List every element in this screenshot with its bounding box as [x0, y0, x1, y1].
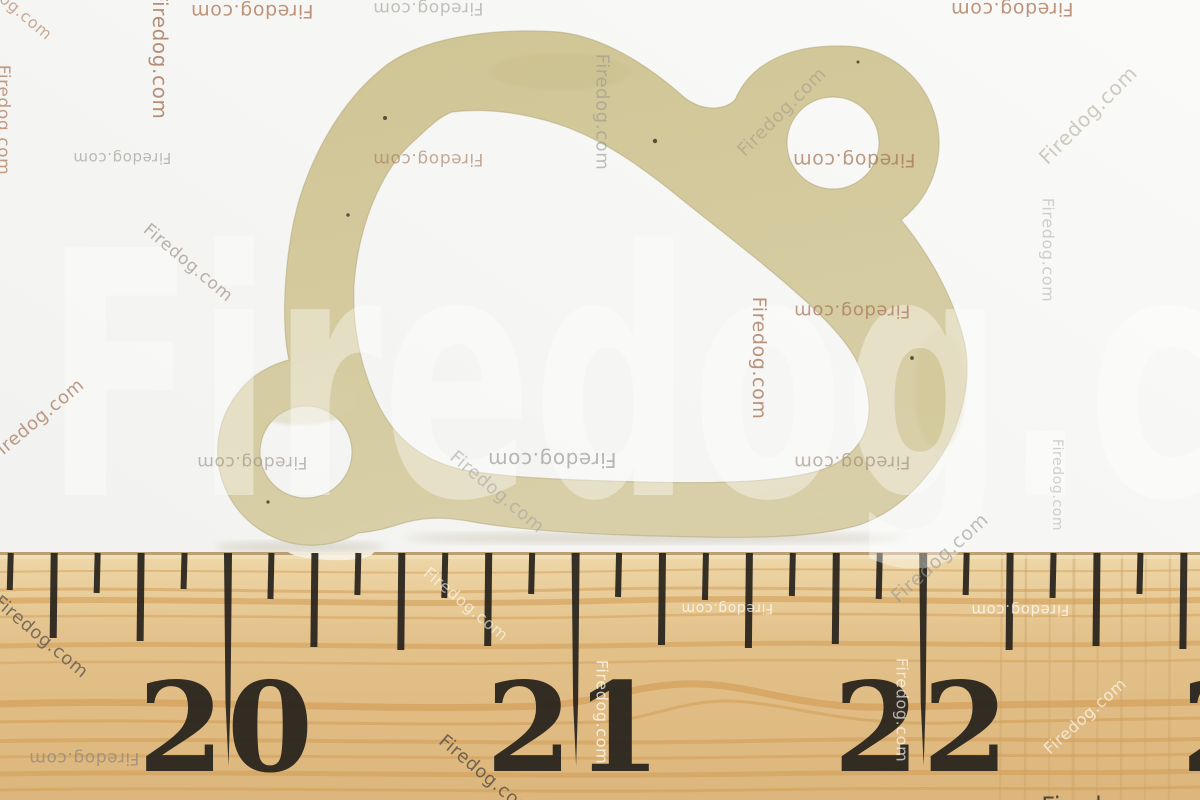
watermark-text: Firedog.com: [593, 660, 612, 765]
watermark-text: Firedog.com: [73, 149, 171, 167]
ruler-number-20-right: 0: [227, 656, 313, 800]
watermark-text: Firedog.com: [793, 149, 916, 171]
watermark-text: Firedog.com: [373, 149, 484, 169]
watermark-text: Firedog.com: [794, 452, 911, 473]
watermark-text: Firedog.com: [191, 0, 314, 22]
product-photo-stage: 20212223 Firedog.com Firedog.comFiredog.…: [0, 0, 1200, 800]
watermark-text: Firedog.com: [1041, 792, 1194, 800]
big-watermark-text: Firedog.com: [44, 180, 1200, 576]
watermark-text: Firedog.com: [592, 54, 613, 171]
watermark-text: Firedog.com: [951, 0, 1074, 20]
watermark-text: Firedog.com: [197, 452, 308, 472]
watermark-text: Firedog.com: [1039, 198, 1058, 303]
ruler-number-22-right: 2: [922, 656, 1008, 800]
watermark-text: Firedog.com: [29, 748, 140, 768]
watermark-text: Firedog.com: [748, 297, 770, 420]
watermark-text: Firedog.com: [0, 65, 13, 176]
watermark-text: Firedog.com: [148, 0, 172, 120]
product-photo: 20212223 Firedog.com Firedog.comFiredog.…: [0, 0, 1200, 800]
watermark-text: Firedog.com: [893, 658, 912, 763]
ruler-number-21-right: 1: [575, 656, 661, 800]
ruler-number-20-left: 2: [138, 656, 224, 800]
watermark-text: Firedog.com: [971, 601, 1069, 619]
watermark-text: Firedog.com: [373, 0, 484, 18]
ruler-tick-eighth: [10, 553, 11, 590]
ruler-number-23-left: 2: [1181, 656, 1200, 800]
watermark-text: Firedog.com: [1049, 439, 1065, 531]
watermark-text: Firedog.com: [488, 448, 617, 472]
watermark-text: Firedog.com: [794, 301, 911, 322]
watermark-text: Firedog.com: [681, 600, 773, 616]
